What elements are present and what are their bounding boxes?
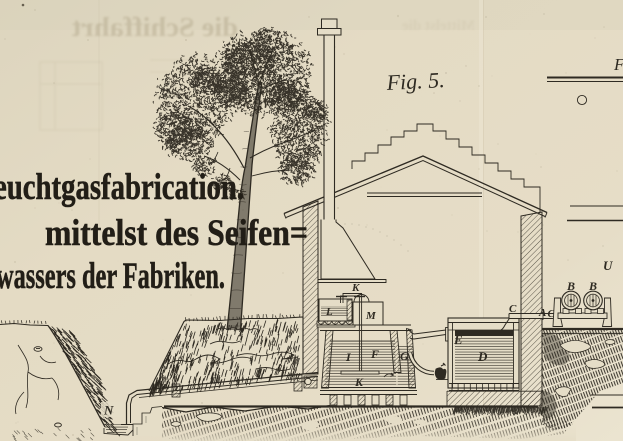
svg-text:K: K [351, 282, 360, 294]
svg-text:D: D [477, 349, 488, 364]
svg-text:euchtgasfabrication.: euchtgasfabrication. [0, 167, 244, 208]
svg-text:wassers der Fabriken.: wassers der Fabriken. [0, 256, 225, 297]
svg-text:U: U [603, 258, 613, 273]
svg-text:mittelst des Seifen=: mittelst des Seifen= [45, 213, 308, 254]
svg-text:B: B [566, 279, 575, 293]
svg-text:die Schiffahrt: die Schiffahrt [71, 12, 238, 42]
svg-text:A: A [538, 307, 546, 319]
svg-text:L: L [325, 306, 333, 318]
svg-text:B: B [588, 279, 597, 293]
svg-text:F: F [370, 347, 379, 361]
svg-text:E: E [453, 332, 463, 347]
svg-text:M: M [365, 310, 377, 322]
svg-text:F: F [613, 55, 623, 74]
svg-text:N: N [103, 403, 114, 418]
svg-text:Mittelst die: Mittelst die [402, 18, 475, 34]
svg-text:C: C [509, 303, 517, 315]
svg-text:Fig. 5.: Fig. 5. [385, 67, 445, 95]
svg-text:G: G [400, 349, 409, 363]
svg-text:K: K [354, 375, 364, 389]
